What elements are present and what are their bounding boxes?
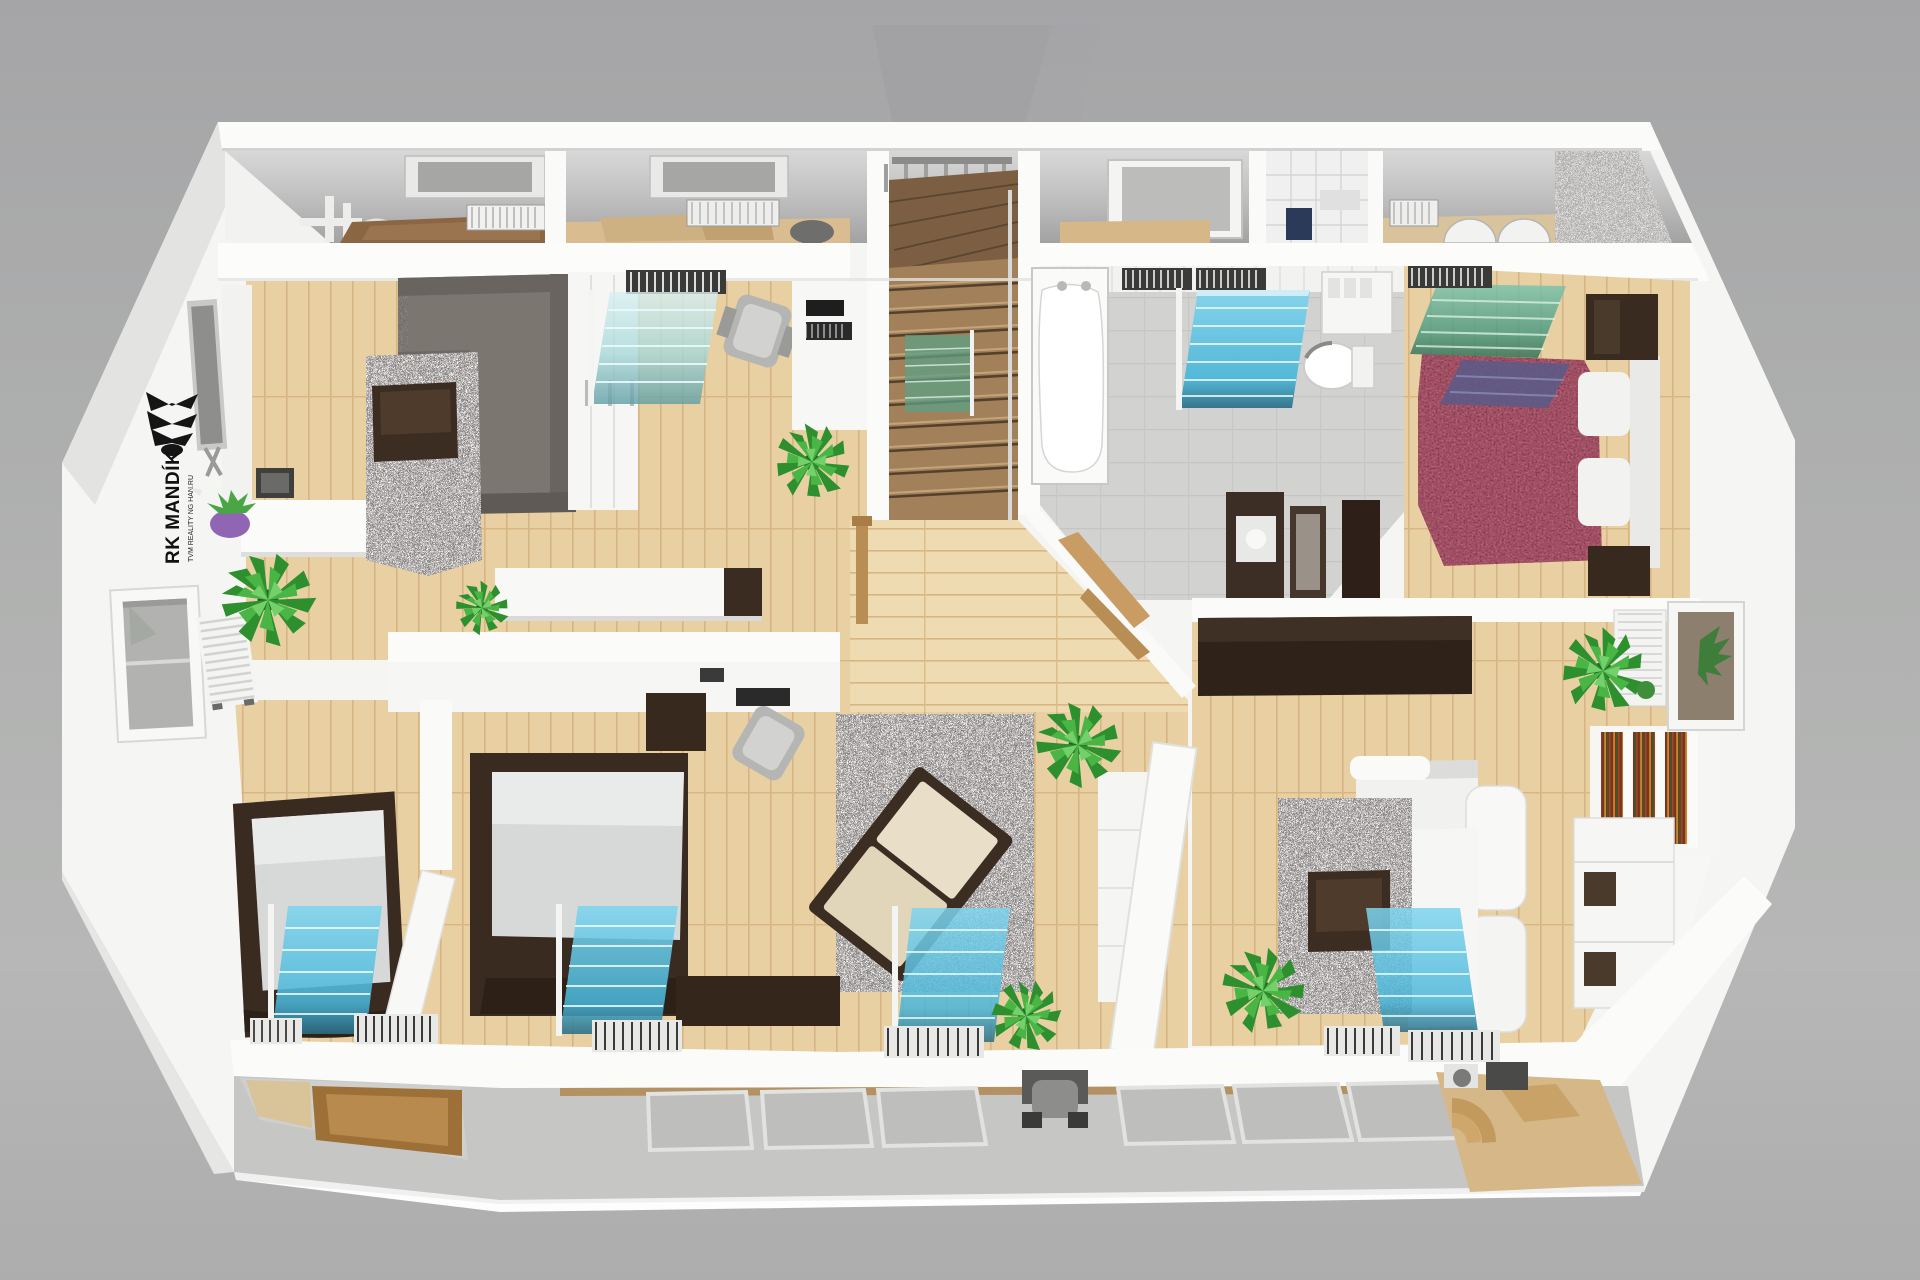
svg-text:TVM REALITY NG HAN.RU: TVM REALITY NG HAN.RU xyxy=(188,475,195,562)
svg-text:RK MANDÍK: RK MANDÍK xyxy=(162,451,184,564)
